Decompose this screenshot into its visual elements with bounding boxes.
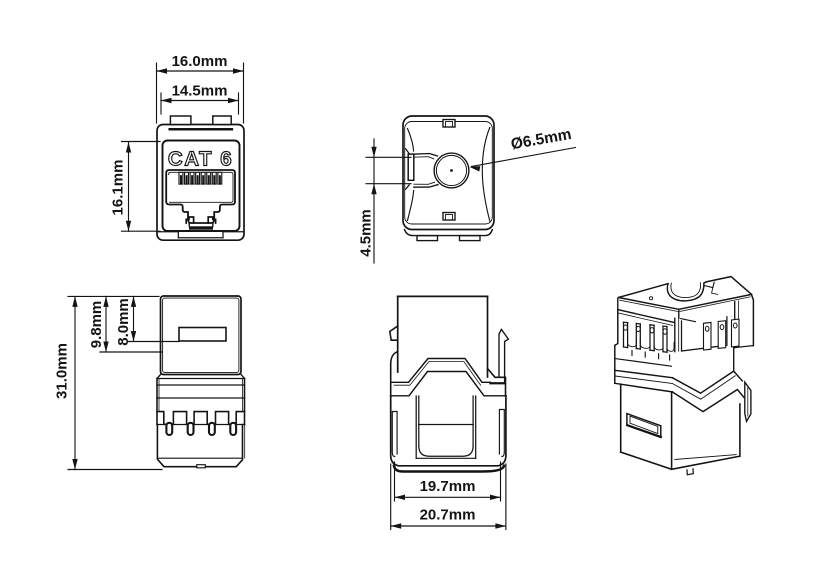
svg-text:CAT 6: CAT 6 <box>168 148 233 171</box>
svg-text:19.7mm: 19.7mm <box>420 478 476 495</box>
svg-text:8.0mm: 8.0mm <box>115 298 132 346</box>
svg-text:4.5mm: 4.5mm <box>358 209 375 257</box>
svg-text:14.5mm: 14.5mm <box>172 83 228 100</box>
svg-text:Ø6.5mm: Ø6.5mm <box>510 126 573 153</box>
svg-text:9.8mm: 9.8mm <box>88 301 105 349</box>
svg-text:20.7mm: 20.7mm <box>420 507 476 524</box>
svg-text:16.1mm: 16.1mm <box>110 160 127 216</box>
svg-text:16.0mm: 16.0mm <box>172 53 228 70</box>
svg-text:31.0mm: 31.0mm <box>54 343 71 399</box>
